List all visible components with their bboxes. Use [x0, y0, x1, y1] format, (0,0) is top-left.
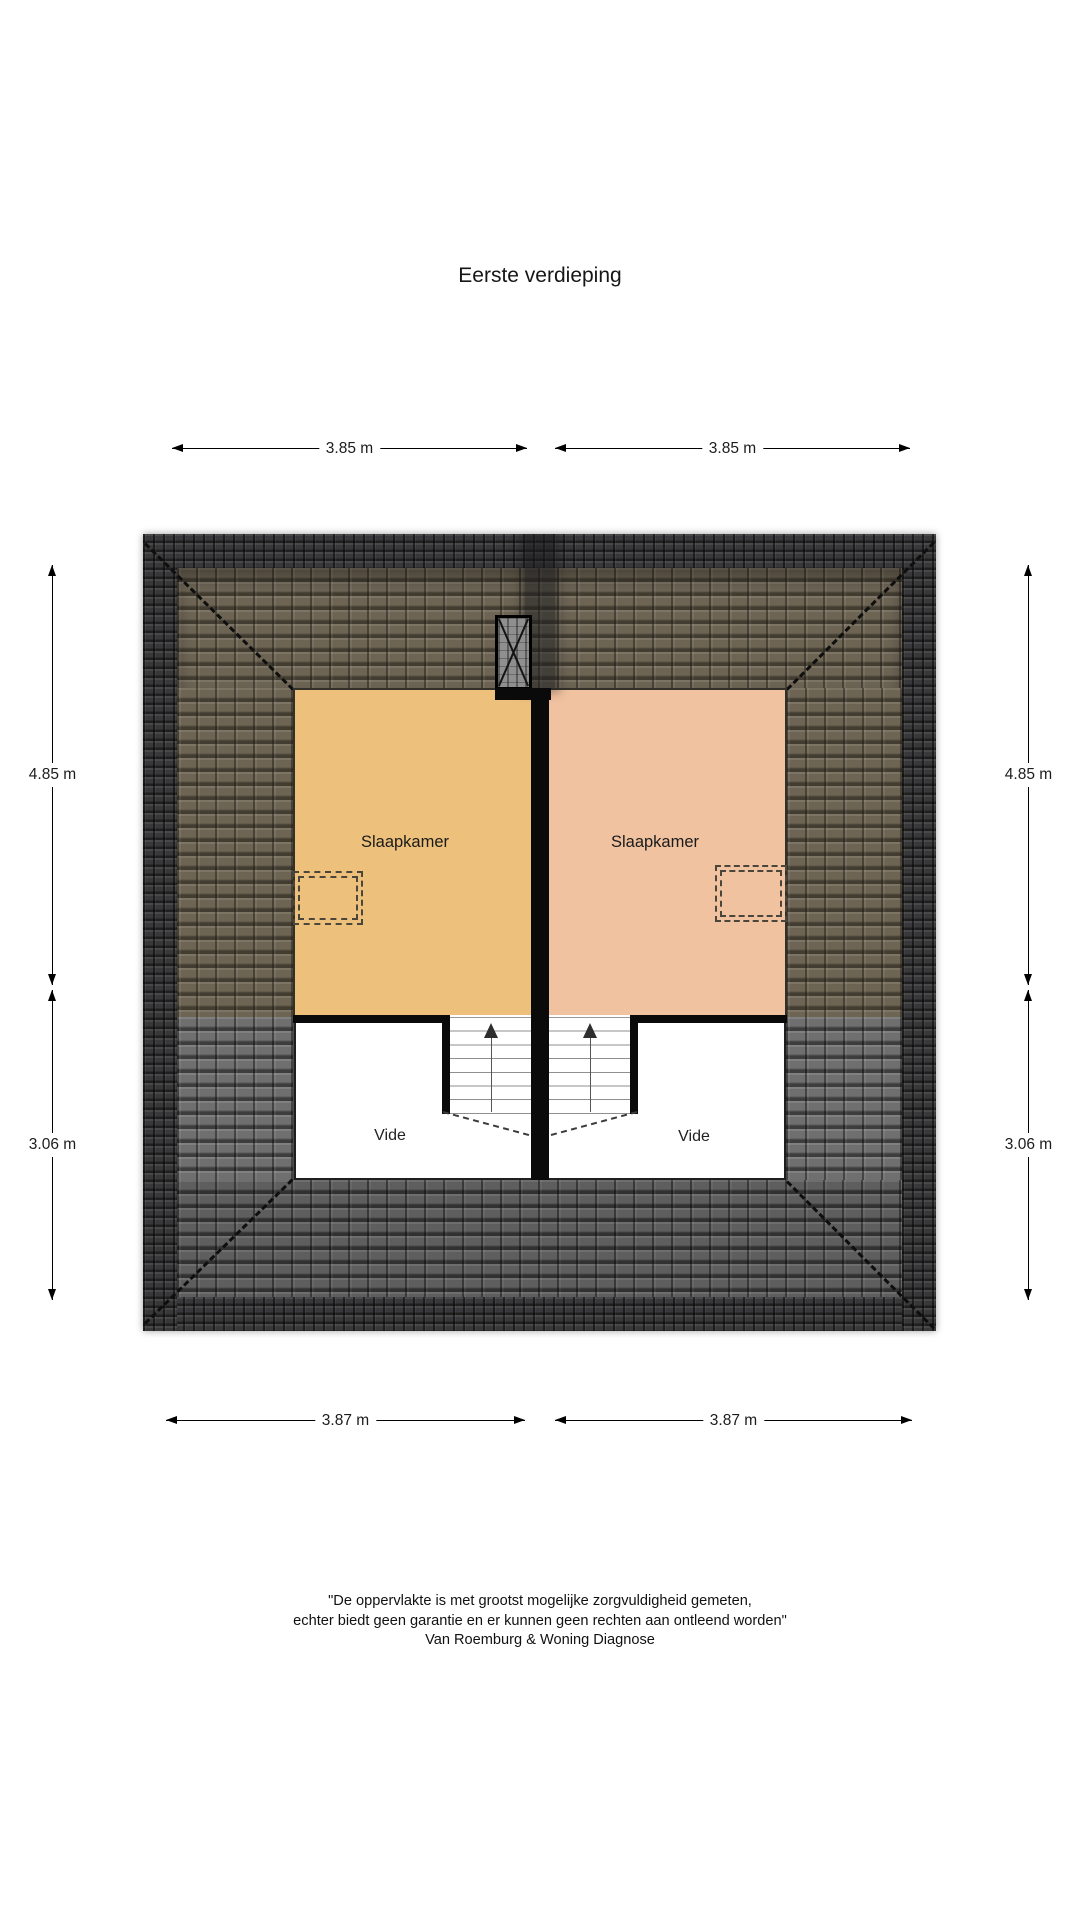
dimension-left-upper: 4.85 m: [46, 565, 59, 985]
vide-left-label: Vide: [330, 1127, 450, 1145]
dimension-label: 3.87 m: [315, 1412, 376, 1430]
dimension-label: 3.85 m: [702, 440, 763, 458]
roof-eave-band-left: [143, 534, 177, 1331]
arrow-up-icon: [1024, 990, 1032, 1001]
vide-right-label: Vide: [634, 1128, 754, 1146]
disclaimer: "De oppervlakte is met grootst mogelijke…: [0, 1592, 1080, 1651]
dimension-label: 4.85 m: [26, 763, 79, 787]
arrow-right-icon: [901, 1416, 912, 1424]
dimension-bottom-left: 3.87 m: [166, 1414, 525, 1427]
floor-plan: Slaapkamer Slaapkamer Vide Vide: [143, 534, 936, 1331]
roof-slope-left-upper: [177, 688, 293, 1017]
dimension-top-left: 3.85 m: [172, 442, 527, 455]
arrow-up-icon: [48, 990, 56, 1001]
arrow-left-icon: [555, 1416, 566, 1424]
arrow-down-icon: [1024, 974, 1032, 985]
arrow-left-icon: [166, 1416, 177, 1424]
party-wall: [531, 688, 549, 1180]
skylight-marker-right-inner: [720, 870, 782, 917]
wall-bedroom-right-bottom: [630, 1015, 787, 1023]
page-title: Eerste verdieping: [0, 264, 1080, 288]
roof-slope-back: [177, 1180, 902, 1297]
dimension-top-right: 3.85 m: [555, 442, 910, 455]
wall-stairs-left: [442, 1015, 450, 1114]
wall-stairs-right: [630, 1015, 638, 1114]
arrow-up-icon: [1024, 565, 1032, 576]
skylight-marker-right: [715, 865, 787, 922]
shaft-cross-icon: [498, 618, 529, 687]
dimension-label: 4.85 m: [1002, 763, 1055, 787]
roof-slope-right-upper: [786, 688, 902, 1017]
arrow-up-icon: [48, 565, 56, 576]
arrow-down-icon: [48, 1289, 56, 1300]
skylight-marker-left-inner: [298, 876, 358, 920]
stairs-right: [549, 1017, 630, 1115]
arrow-right-icon: [899, 444, 910, 452]
dimension-right-lower: 3.06 m: [1022, 990, 1035, 1300]
bedroom-right-label: Slaapkamer: [575, 833, 735, 852]
arrow-down-icon: [1024, 1289, 1032, 1300]
roof-slope-right-lower: [786, 1017, 902, 1180]
roof-slope-left-lower: [177, 1017, 293, 1180]
dimension-right-upper: 4.85 m: [1022, 565, 1035, 985]
arrow-down-icon: [48, 974, 56, 985]
dimension-bottom-right: 3.87 m: [555, 1414, 912, 1427]
bedroom-left-label: Slaapkamer: [325, 833, 485, 852]
stairs-left: [450, 1017, 531, 1115]
arrow-right-icon: [516, 444, 527, 452]
arrow-left-icon: [172, 444, 183, 452]
dimension-label: 3.85 m: [319, 440, 380, 458]
shaft-icon: [495, 615, 532, 690]
skylight-marker-left: [293, 871, 363, 925]
disclaimer-line-1: "De oppervlakte is met grootst mogelijke…: [0, 1592, 1080, 1612]
arrow-left-icon: [555, 444, 566, 452]
floorplan-page: Eerste verdieping: [0, 0, 1080, 1920]
dimension-label: 3.06 m: [1002, 1133, 1055, 1157]
dimension-label: 3.06 m: [26, 1133, 79, 1157]
wall-bedroom-left-bottom: [293, 1015, 450, 1023]
disclaimer-line-3: Van Roemburg & Woning Diagnose: [0, 1631, 1080, 1651]
dimension-label: 3.87 m: [703, 1412, 764, 1430]
roof-eave-band-bottom: [143, 1297, 936, 1331]
disclaimer-line-2: echter biedt geen garantie en er kunnen …: [0, 1612, 1080, 1632]
roof-eave-band-right: [902, 534, 936, 1331]
arrow-right-icon: [514, 1416, 525, 1424]
dimension-left-lower: 3.06 m: [46, 990, 59, 1300]
